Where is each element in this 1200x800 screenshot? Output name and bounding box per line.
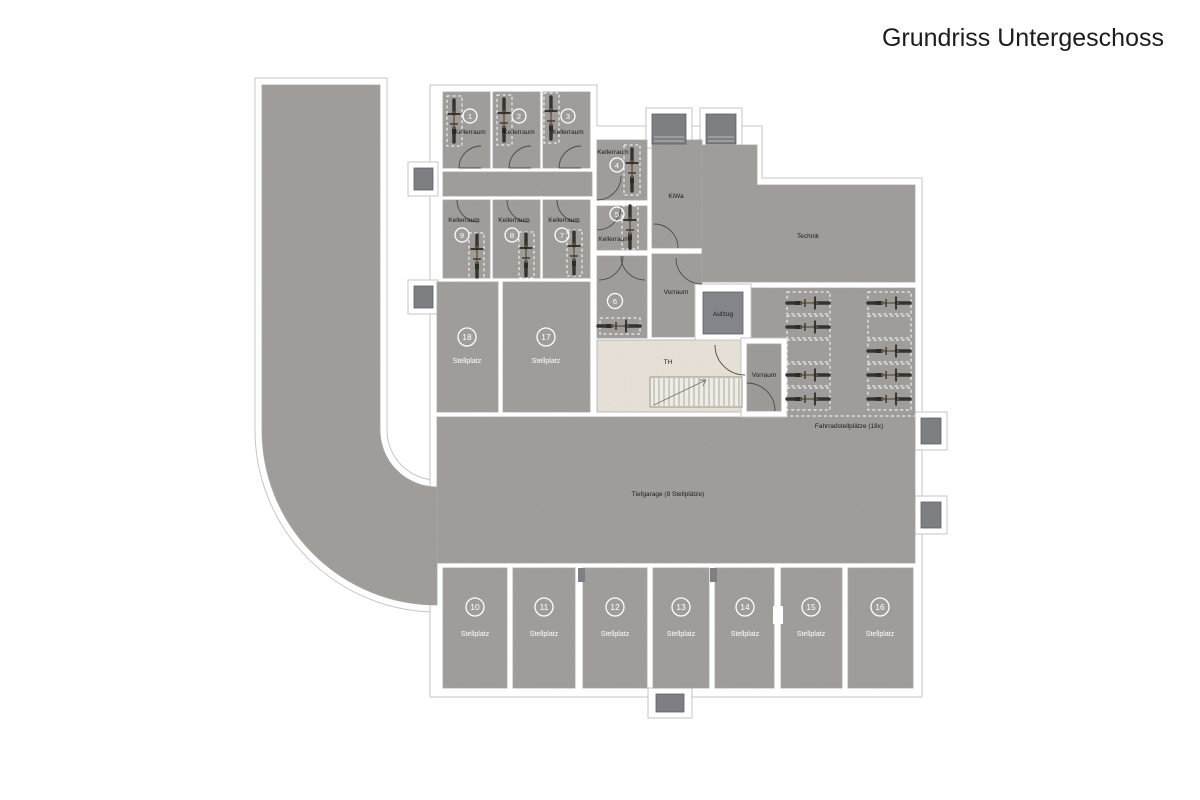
light-well [414, 286, 433, 308]
parking-space-16 [848, 568, 913, 688]
parking-label: Stellplatz [461, 631, 490, 638]
room-label: Kellerraum [454, 129, 485, 136]
area-label-vorraum-center: Vorraum [664, 289, 689, 296]
room-number: 3 [566, 112, 570, 121]
room-label: Kellerraum [498, 217, 529, 224]
parking-label: Stellplatz [797, 631, 826, 638]
parking-number: 17 [541, 332, 551, 342]
room-label: Kellerraum [598, 236, 629, 243]
room-number: 1 [468, 112, 472, 121]
parking-label: Stellplatz [601, 631, 630, 638]
room-number: 6 [613, 297, 617, 306]
parking-number: 18 [462, 332, 472, 342]
parking-label: Stellplatz [866, 631, 895, 638]
light-well [414, 168, 433, 190]
area-label-aufzug: Aufzug [713, 311, 734, 318]
room-technik [702, 145, 915, 282]
light-well [656, 694, 684, 712]
parking-number: 11 [540, 602, 549, 612]
room-number: 5 [615, 210, 619, 219]
parking-space-17 [503, 282, 590, 412]
parking-label: Stellplatz [530, 631, 559, 638]
room-label: Kellerraum [548, 217, 579, 224]
floor-plan-page: Grundriss Untergeschoss [0, 0, 1200, 800]
parking-label: Stellplatz [731, 631, 760, 638]
stairs [650, 377, 742, 407]
parking-space-11 [513, 568, 575, 688]
area-label-vorraum-right: Vorraum [752, 372, 777, 379]
area-label-kiwa: KiWa [668, 193, 684, 200]
parking-space-12 [583, 568, 647, 688]
floor-plan-drawing: 1 Kellerraum 2 Kellerraum 3 Kellerraum K… [0, 0, 1200, 800]
parking-space-15 [781, 568, 842, 688]
parking-label: Stellplatz [532, 358, 561, 365]
parking-space-10 [443, 568, 507, 688]
light-well [921, 502, 941, 528]
room-number: 7 [560, 231, 564, 240]
room-label: Kellerraum [448, 217, 479, 224]
room-number: 4 [615, 161, 619, 170]
room-kellerraum-9 [443, 200, 490, 278]
parking-space-14 [715, 568, 774, 688]
room-label: Kellerraum [552, 129, 583, 136]
parking-space-18 [437, 282, 498, 412]
parking-space-13 [653, 568, 709, 688]
area-label-garage: Tiefgarage (9 Stellplätze) [632, 491, 704, 498]
parking-number: 16 [875, 602, 885, 612]
parking-number: 12 [610, 602, 620, 612]
room-number: 2 [517, 112, 521, 121]
room-label: Kellerraum [503, 129, 534, 136]
light-well [706, 114, 736, 144]
area-label-th: TH [664, 359, 673, 366]
cellar-corridor [443, 172, 592, 196]
parking-number: 14 [740, 602, 750, 612]
light-well [652, 114, 686, 144]
parking-number: 13 [676, 602, 686, 612]
parking-label: Stellplatz [453, 358, 482, 365]
room-kellerraum-8 [493, 200, 540, 278]
room-number: 8 [510, 231, 514, 240]
parking-number: 15 [806, 602, 816, 612]
floor-areas [262, 85, 915, 688]
room-number: 9 [460, 231, 464, 240]
area-label-technik: Technik [797, 233, 820, 240]
light-well [921, 418, 941, 444]
room-label: Kellerraum [597, 149, 628, 156]
parking-label: Stellplatz [667, 631, 696, 638]
wall-tab [773, 606, 783, 624]
parking-number: 10 [470, 602, 480, 612]
area-label-bike-parking: Fahrradstellplätze (18x) [815, 423, 883, 430]
pillar [710, 568, 717, 582]
pillar [578, 568, 585, 582]
